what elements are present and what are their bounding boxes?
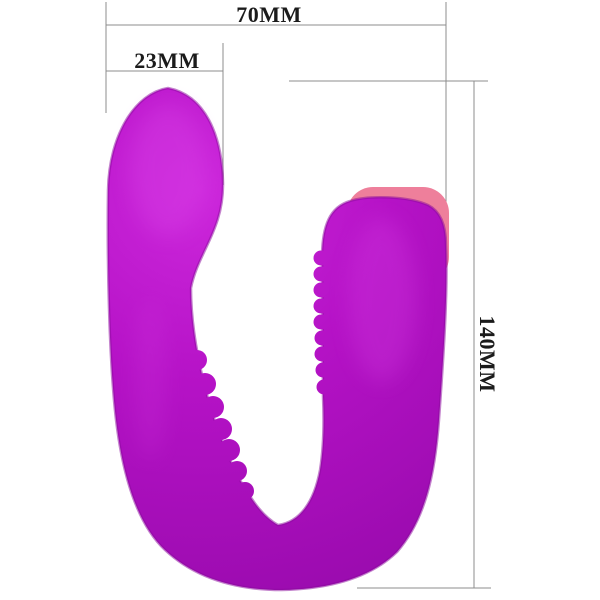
rib-bump — [316, 363, 331, 378]
product-dimension-diagram: 70MM 23MM 140MM — [0, 0, 600, 600]
head-width-dimension-label: 23MM — [87, 50, 247, 72]
rib-bump — [314, 283, 329, 298]
ridge-bump — [202, 396, 224, 418]
rib-bump — [314, 267, 329, 282]
rib-bump — [314, 251, 329, 266]
rib-bump — [315, 331, 330, 346]
length-dimension-label: 140MM — [476, 294, 498, 414]
highlight-left-arm — [134, 300, 166, 460]
width-dimension-label: 70MM — [189, 4, 349, 26]
highlight-head — [130, 104, 206, 236]
ridge-bump — [236, 482, 254, 500]
ridge-bump — [227, 461, 247, 481]
ridge-bump — [194, 373, 216, 395]
ridge-bump — [210, 418, 232, 440]
rib-bump — [315, 347, 330, 362]
highlight-shaft — [348, 218, 416, 382]
diagram-canvas — [0, 0, 600, 600]
rib-bump — [314, 299, 329, 314]
rib-bump — [314, 315, 329, 330]
product-illustration — [108, 88, 449, 590]
ridge-bump — [218, 439, 240, 461]
ridge-bump — [187, 350, 207, 370]
rib-bump — [317, 380, 332, 395]
